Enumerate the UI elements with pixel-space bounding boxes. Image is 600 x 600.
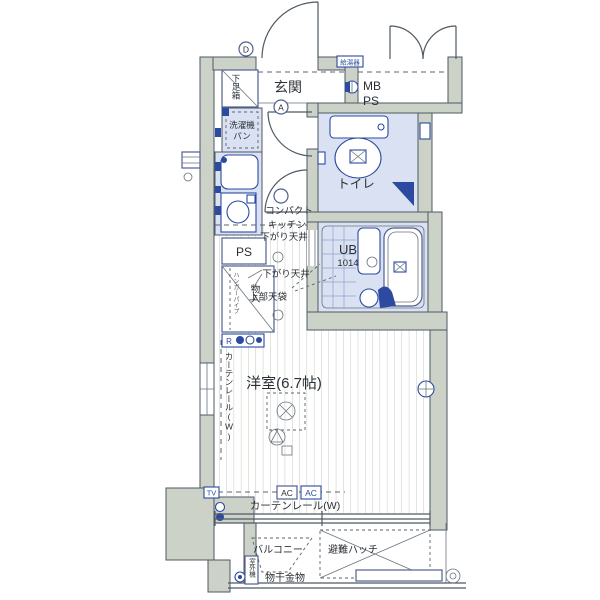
wall-ub-bottom-step bbox=[307, 312, 447, 330]
wall-corridor-toilet-2 bbox=[307, 149, 318, 212]
vent-circle bbox=[184, 173, 192, 181]
outlet-dot-3 bbox=[256, 337, 262, 343]
mbps-door-arcs bbox=[390, 26, 456, 59]
ub-stool bbox=[360, 289, 378, 307]
entry-door-arc bbox=[262, 2, 318, 58]
pipe-mark-3 bbox=[215, 186, 221, 193]
wall-ub-top bbox=[307, 212, 442, 222]
label-shoe-box: 下足箱 bbox=[231, 74, 241, 100]
label-upper-cabinet: 上部天袋 bbox=[249, 291, 288, 303]
unit-bath bbox=[318, 222, 428, 312]
label-tv-outlet: TV bbox=[207, 489, 217, 498]
wall-left-upper bbox=[200, 57, 214, 363]
label-ub: UB bbox=[339, 242, 357, 257]
label-hanger-pipe: ハンガーパイプ bbox=[232, 272, 239, 314]
label-curtain-bottom: カーテンレール(W) bbox=[250, 500, 340, 512]
kitchen-vent-exterior bbox=[182, 152, 200, 181]
meter-mark bbox=[345, 82, 350, 92]
label-laundry-hardware: 物干金物 bbox=[265, 571, 305, 584]
label-mark-d: D bbox=[243, 45, 249, 55]
wall-toilet-top bbox=[318, 103, 462, 113]
label-water-heater: 給湯器 bbox=[340, 58, 360, 67]
label-balcony: バルコニー bbox=[253, 544, 303, 556]
outlet-dot-2 bbox=[246, 336, 254, 344]
balcony-drain-inner bbox=[450, 573, 456, 579]
toilet-flush-knob bbox=[378, 124, 384, 130]
vent-box bbox=[182, 152, 200, 168]
label-ps-meter: PS bbox=[363, 94, 379, 108]
toilet-door-arc bbox=[268, 112, 312, 156]
pipe-mark-1 bbox=[215, 128, 221, 137]
label-ub-size: 1014 bbox=[337, 258, 358, 269]
label-lowered-ceiling-2: 下がり天井 bbox=[262, 268, 310, 280]
mark-b-circle bbox=[274, 189, 288, 203]
balcony-faucet-dot bbox=[238, 575, 242, 579]
outlet-mark-1 bbox=[216, 503, 225, 512]
toilet-room bbox=[268, 112, 430, 212]
wall-right-lower bbox=[430, 330, 447, 530]
wall-corridor-toilet-1 bbox=[307, 103, 318, 117]
label-escape-hatch: 避難ハッチ bbox=[328, 543, 378, 556]
toilet-paper-holder bbox=[318, 152, 325, 164]
balcony-edge-lines bbox=[228, 583, 466, 588]
wall-stem-bottom bbox=[208, 560, 230, 592]
label-outlet-r: R bbox=[226, 337, 232, 346]
label-toilet: トイレ bbox=[337, 177, 375, 191]
laundry-tap-mark bbox=[222, 108, 229, 116]
label-entrance: 玄関 bbox=[274, 79, 302, 95]
label-lowered-ceiling-1: 下がり天井 bbox=[260, 231, 308, 243]
toilet-window bbox=[420, 123, 430, 139]
outlet-dot-1 bbox=[236, 336, 244, 344]
flooring-lower bbox=[215, 330, 430, 513]
label-kitchen-1: コンパクト bbox=[265, 206, 313, 217]
kitchen-faucet bbox=[221, 157, 227, 163]
floor-plan: 玄関 下足箱 MB PS 給湯器 洗濯機 パン トイレ UB 1014 コンパク… bbox=[0, 0, 600, 600]
label-ac-2: AC bbox=[305, 488, 317, 498]
label-mark-a: A bbox=[278, 103, 284, 113]
label-pipe-space: PS bbox=[236, 245, 252, 259]
label-western-room: 洋室(6.7帖) bbox=[246, 375, 322, 392]
stove-burner bbox=[227, 201, 249, 223]
wall-top-1 bbox=[213, 57, 256, 70]
ub-vanity bbox=[358, 228, 380, 274]
stove-switch bbox=[247, 195, 255, 203]
pipe-mark-2 bbox=[215, 162, 221, 171]
pipe-mark-4 bbox=[215, 206, 221, 215]
wall-ub-right bbox=[428, 212, 442, 312]
label-laundry-1: 洗濯機 bbox=[229, 120, 255, 130]
label-laundry-2: パン bbox=[233, 131, 250, 141]
wall-pillar-bottom-left bbox=[166, 488, 214, 560]
balcony-drain bbox=[446, 569, 460, 583]
label-ac-1: AC bbox=[281, 488, 293, 498]
label-mb: MB bbox=[363, 79, 381, 93]
floor-plan-drawing: 玄関 下足箱 MB PS 給湯器 洗濯機 パン トイレ UB 1014 コンパク… bbox=[0, 0, 600, 600]
label-kitchen-2: キッチン bbox=[268, 220, 306, 231]
balcony-planter bbox=[356, 570, 442, 581]
label-curtain-left: カーテンレール(W) bbox=[224, 352, 234, 442]
